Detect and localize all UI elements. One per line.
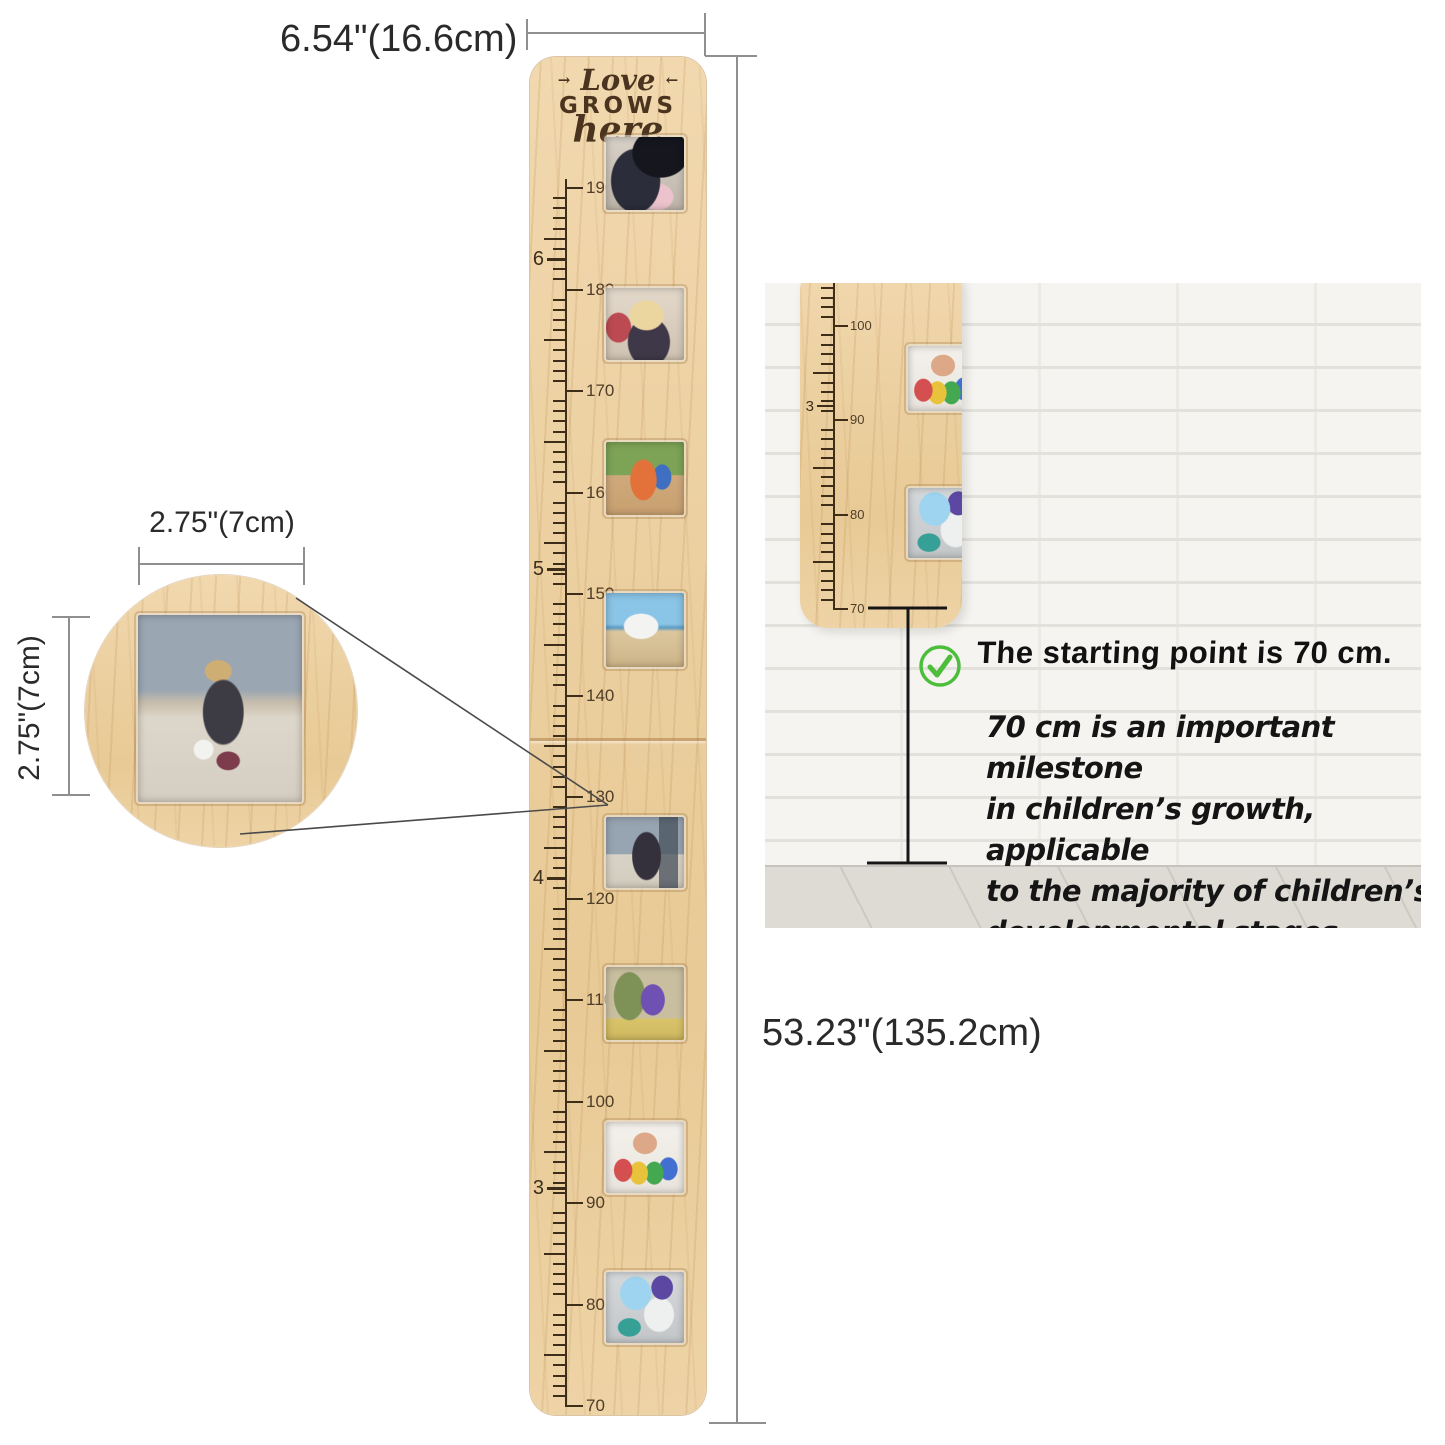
- ruler-minor-tick: [553, 918, 565, 920]
- board-height-label: 53.23"(135.2cm): [762, 1012, 1042, 1055]
- ruler-minor-tick: [553, 1212, 565, 1214]
- ruler-minor-tick: [553, 1364, 565, 1366]
- ruler-minor-tick: [553, 248, 565, 250]
- ruler-feet-label: 5: [530, 558, 544, 581]
- check-circle-icon: [917, 643, 963, 689]
- ruler-minor-tick: [553, 1009, 565, 1011]
- ruler-minor-tick: [553, 989, 565, 991]
- ruler-major-tick: [565, 187, 583, 189]
- ruler-minor-tick: [553, 725, 565, 727]
- ruler-cm-label: 80: [586, 1295, 605, 1315]
- ruler-mid-tick: [544, 745, 565, 747]
- milestone-paragraph: 70 cm is an important milestone in child…: [986, 707, 1421, 928]
- ruler-minor-tick: [553, 654, 565, 656]
- photo-arms-raised-view: [606, 593, 684, 667]
- ruler-feet-label: 4: [530, 867, 544, 890]
- ruler-minor-tick: [553, 512, 565, 514]
- ruler-minor-tick: [553, 207, 565, 209]
- ruler-minor-tick: [553, 806, 565, 808]
- ruler-mid-tick: [544, 339, 565, 341]
- ruler-minor-tick: [553, 400, 565, 402]
- photo-marathon-finish: [606, 442, 684, 515]
- ruler-mid-tick: [544, 1151, 565, 1153]
- ruler-mid-tick: [544, 644, 565, 646]
- ruler-minor-tick: [553, 502, 565, 504]
- ruler-major-tick: [565, 796, 583, 798]
- ruler-cm-label: 70: [586, 1396, 605, 1415]
- ruler-major-tick: [565, 898, 583, 900]
- ruler-major-tick: [565, 999, 583, 1001]
- ruler-major-tick: [565, 695, 583, 697]
- ruler-feet-tick: [547, 258, 565, 261]
- ruler-minor-tick: [553, 1141, 565, 1143]
- ruler-minor-tick: [553, 1283, 565, 1285]
- ruler-cm-label: 90: [586, 1193, 605, 1213]
- ruler-cm-label: 130: [586, 787, 614, 807]
- ruler-minor-tick: [553, 471, 565, 473]
- ruler-minor-tick: [553, 299, 565, 301]
- frame-height-label: 2.75"(7cm): [13, 598, 51, 818]
- photo-girl-soccer-ball-magnified: [138, 615, 302, 802]
- ruler-mid-tick: [544, 542, 565, 544]
- ruler-major-tick: [565, 1304, 583, 1306]
- ruler-minor-tick: [553, 715, 565, 717]
- ruler-minor-tick: [553, 684, 565, 686]
- wall-scene-inset: 7080901003 The starting point is 70 cm. …: [765, 283, 1421, 928]
- ruler-major-tick: [565, 593, 583, 595]
- paragraph-line: 70 cm is an important milestone: [986, 707, 1421, 789]
- ruler-minor-tick: [553, 816, 565, 818]
- photo-toddler-birthday: [606, 1272, 684, 1343]
- ruler-minor-tick: [553, 1080, 565, 1082]
- ruler-minor-tick: [553, 1293, 565, 1295]
- ruler-minor-tick: [553, 969, 565, 971]
- ruler-minor-tick: [553, 420, 565, 422]
- ruler-minor-tick: [553, 1385, 565, 1387]
- ruler-cm-label: 120: [586, 889, 614, 909]
- ruler-minor-tick: [553, 461, 565, 463]
- ruler-minor-tick: [553, 563, 565, 565]
- width-dimension-bracket: [527, 13, 757, 56]
- photo-child-painted-hands: [606, 1122, 684, 1193]
- ruler-minor-tick: [553, 329, 565, 331]
- ruler-cm-label: 140: [586, 686, 614, 706]
- ruler-major-tick: [565, 492, 583, 494]
- ruler-minor-tick: [553, 319, 565, 321]
- ruler-cm-label: 100: [586, 1092, 614, 1112]
- frame-width-label: 2.75"(7cm): [104, 506, 340, 540]
- ruler-minor-tick: [553, 857, 565, 859]
- ruler-major-tick: [565, 1405, 583, 1407]
- ruler-minor-tick: [553, 1232, 565, 1234]
- ruler-minor-tick: [553, 1192, 565, 1194]
- ruler-minor-tick: [553, 1172, 565, 1174]
- ruler-minor-tick: [553, 1161, 565, 1163]
- height-dimension-line: [709, 56, 766, 1423]
- ruler-minor-tick: [553, 522, 565, 524]
- ruler-minor-tick: [553, 1375, 565, 1377]
- ruler-minor-tick: [553, 634, 565, 636]
- ruler-minor-tick: [553, 908, 565, 910]
- growth-chart-board: → Love ← GROWS here 70809010011012013014…: [530, 57, 706, 1415]
- ruler-minor-tick: [553, 938, 565, 940]
- ruler-minor-tick: [553, 1314, 565, 1316]
- ruler-minor-tick: [553, 1029, 565, 1031]
- ruler-minor-tick: [553, 1324, 565, 1326]
- paragraph-line: to the majority of children’s: [986, 871, 1421, 912]
- zoom-circle-inset: [85, 575, 357, 847]
- photo-graduation-couple: [606, 137, 684, 210]
- ruler-minor-tick: [553, 410, 565, 412]
- ruler-feet-tick: [547, 568, 565, 571]
- ruler-feet-label: 3: [530, 1177, 544, 1200]
- ruler-minor-tick: [553, 1111, 565, 1113]
- ruler-minor-tick: [553, 837, 565, 839]
- ruler-feet-label: 6: [530, 248, 544, 271]
- ruler-minor-tick: [553, 217, 565, 219]
- ruler-minor-tick: [553, 1182, 565, 1184]
- ruler-minor-tick: [553, 1222, 565, 1224]
- ruler-minor-tick: [553, 1040, 565, 1042]
- ruler-minor-tick: [553, 1334, 565, 1336]
- ruler-minor-tick: [553, 1121, 565, 1123]
- ruler-minor-tick: [553, 532, 565, 534]
- ruler-minor-tick: [553, 1131, 565, 1133]
- ruler-minor-tick: [553, 573, 565, 575]
- ruler-minor-tick: [553, 766, 565, 768]
- ruler-minor-tick: [553, 1273, 565, 1275]
- paragraph-line: in children’s growth, applicable: [986, 789, 1421, 871]
- ruler-minor-tick: [553, 735, 565, 737]
- ruler-minor-tick: [553, 776, 565, 778]
- ruler-mid-tick: [544, 1354, 565, 1356]
- ruler-minor-tick: [553, 1060, 565, 1062]
- ruler-mid-tick: [544, 238, 565, 240]
- product-dimension-diagram: → Love ← GROWS here 70809010011012013014…: [0, 0, 1445, 1445]
- ruler-minor-tick: [553, 1243, 565, 1245]
- ruler-spine: [565, 179, 567, 1407]
- board-width-label: 6.54"(16.6cm): [280, 18, 512, 61]
- photo-birthday-candles: [606, 288, 684, 360]
- ruler-minor-tick: [553, 431, 565, 433]
- ruler-minor-tick: [553, 623, 565, 625]
- ruler-minor-tick: [553, 481, 565, 483]
- ruler-minor-tick: [553, 826, 565, 828]
- ruler-minor-tick: [553, 867, 565, 869]
- ruler-minor-tick: [553, 278, 565, 280]
- ruler-minor-tick: [553, 1019, 565, 1021]
- photo-girl-with-backpack: [606, 817, 684, 888]
- ruler-major-tick: [565, 1202, 583, 1204]
- ruler-minor-tick: [553, 887, 565, 889]
- ruler-minor-tick: [553, 380, 565, 382]
- ruler-minor-tick: [553, 705, 565, 707]
- ruler-minor-tick: [553, 370, 565, 372]
- ruler-feet-tick: [547, 877, 565, 880]
- ruler-minor-tick: [553, 309, 565, 311]
- main-ruler-scale: 7080901001101201301401501601701801906543: [530, 57, 706, 1415]
- ruler-major-tick: [565, 390, 583, 392]
- ruler-mid-tick: [544, 1253, 565, 1255]
- ruler-minor-tick: [553, 268, 565, 270]
- ruler-minor-tick: [553, 552, 565, 554]
- ruler-minor-tick: [553, 786, 565, 788]
- ruler-minor-tick: [553, 451, 565, 453]
- ruler-major-tick: [565, 1101, 583, 1103]
- ruler-minor-tick: [553, 583, 565, 585]
- ruler-minor-tick: [553, 1263, 565, 1265]
- ruler-minor-tick: [553, 360, 565, 362]
- ruler-minor-tick: [553, 1344, 565, 1346]
- ruler-minor-tick: [553, 197, 565, 199]
- ruler-minor-tick: [553, 755, 565, 757]
- ruler-minor-tick: [553, 1070, 565, 1072]
- photo-child-purple-backpack: [606, 967, 684, 1040]
- ruler-mid-tick: [544, 1050, 565, 1052]
- ruler-minor-tick: [553, 979, 565, 981]
- ruler-major-tick: [565, 289, 583, 291]
- ruler-feet-tick: [547, 1187, 565, 1190]
- ruler-mid-tick: [544, 441, 565, 443]
- ruler-minor-tick: [553, 674, 565, 676]
- ruler-minor-tick: [553, 928, 565, 930]
- ruler-cm-label: 170: [586, 381, 614, 401]
- ruler-minor-tick: [553, 1395, 565, 1397]
- starting-point-headline: The starting point is 70 cm.: [976, 635, 1421, 671]
- ruler-minor-tick: [553, 958, 565, 960]
- paragraph-line: developmental stages.: [986, 912, 1421, 928]
- ruler-minor-tick: [553, 603, 565, 605]
- ruler-mid-tick: [544, 948, 565, 950]
- ruler-minor-tick: [553, 664, 565, 666]
- ruler-minor-tick: [553, 613, 565, 615]
- ruler-minor-tick: [553, 1090, 565, 1092]
- ruler-minor-tick: [553, 228, 565, 230]
- ruler-minor-tick: [553, 349, 565, 351]
- ruler-mid-tick: [544, 847, 565, 849]
